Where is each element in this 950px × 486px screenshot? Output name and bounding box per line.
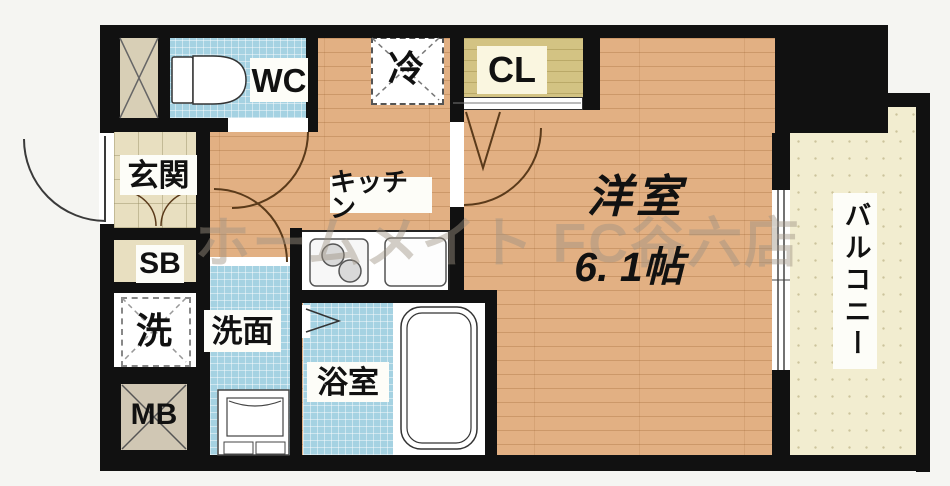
toilet-tank <box>172 57 193 103</box>
label-wc: WC <box>250 58 308 102</box>
bathtub-outer <box>401 307 477 449</box>
shoe-box-door-arc-right <box>161 191 196 226</box>
washbasin-drawer-2 <box>256 442 285 454</box>
label-washroom: 洗面 <box>204 310 281 352</box>
label-refrigerator: 冷 <box>385 47 427 91</box>
label-closet: CL <box>477 46 547 94</box>
label-bathroom: 浴室 <box>307 362 389 402</box>
label-western-room: 洋室 6. 1帖 <box>538 160 734 293</box>
room-door-arc <box>464 128 541 205</box>
wc-door-arc <box>232 132 308 208</box>
shaft-x-marker <box>120 38 158 118</box>
floorplan-canvas: ホームメイト FC谷六店 WC 玄関 SB 洗 MB 洗面 浴室 キッチン 冷 … <box>0 0 950 486</box>
label-balcony: バルコニー <box>833 193 877 369</box>
label-kitchen: キッチン <box>330 177 432 213</box>
washbasin-drawer-1 <box>224 442 253 454</box>
shoe-box-door-arc-left <box>121 191 156 226</box>
closet-door-marker <box>466 112 500 168</box>
bath-folding-door-marker <box>306 309 339 332</box>
label-washer: 洗 <box>132 308 176 354</box>
label-meter-box: MB <box>124 395 184 435</box>
western-room-name: 洋室 <box>538 160 734 225</box>
toilet-bowl <box>193 56 246 104</box>
label-shoe-box: SB <box>136 245 184 283</box>
western-room-size: 6. 1帖 <box>524 233 734 293</box>
label-entrance: 玄関 <box>120 155 197 195</box>
entrance-door-arc <box>24 139 106 221</box>
